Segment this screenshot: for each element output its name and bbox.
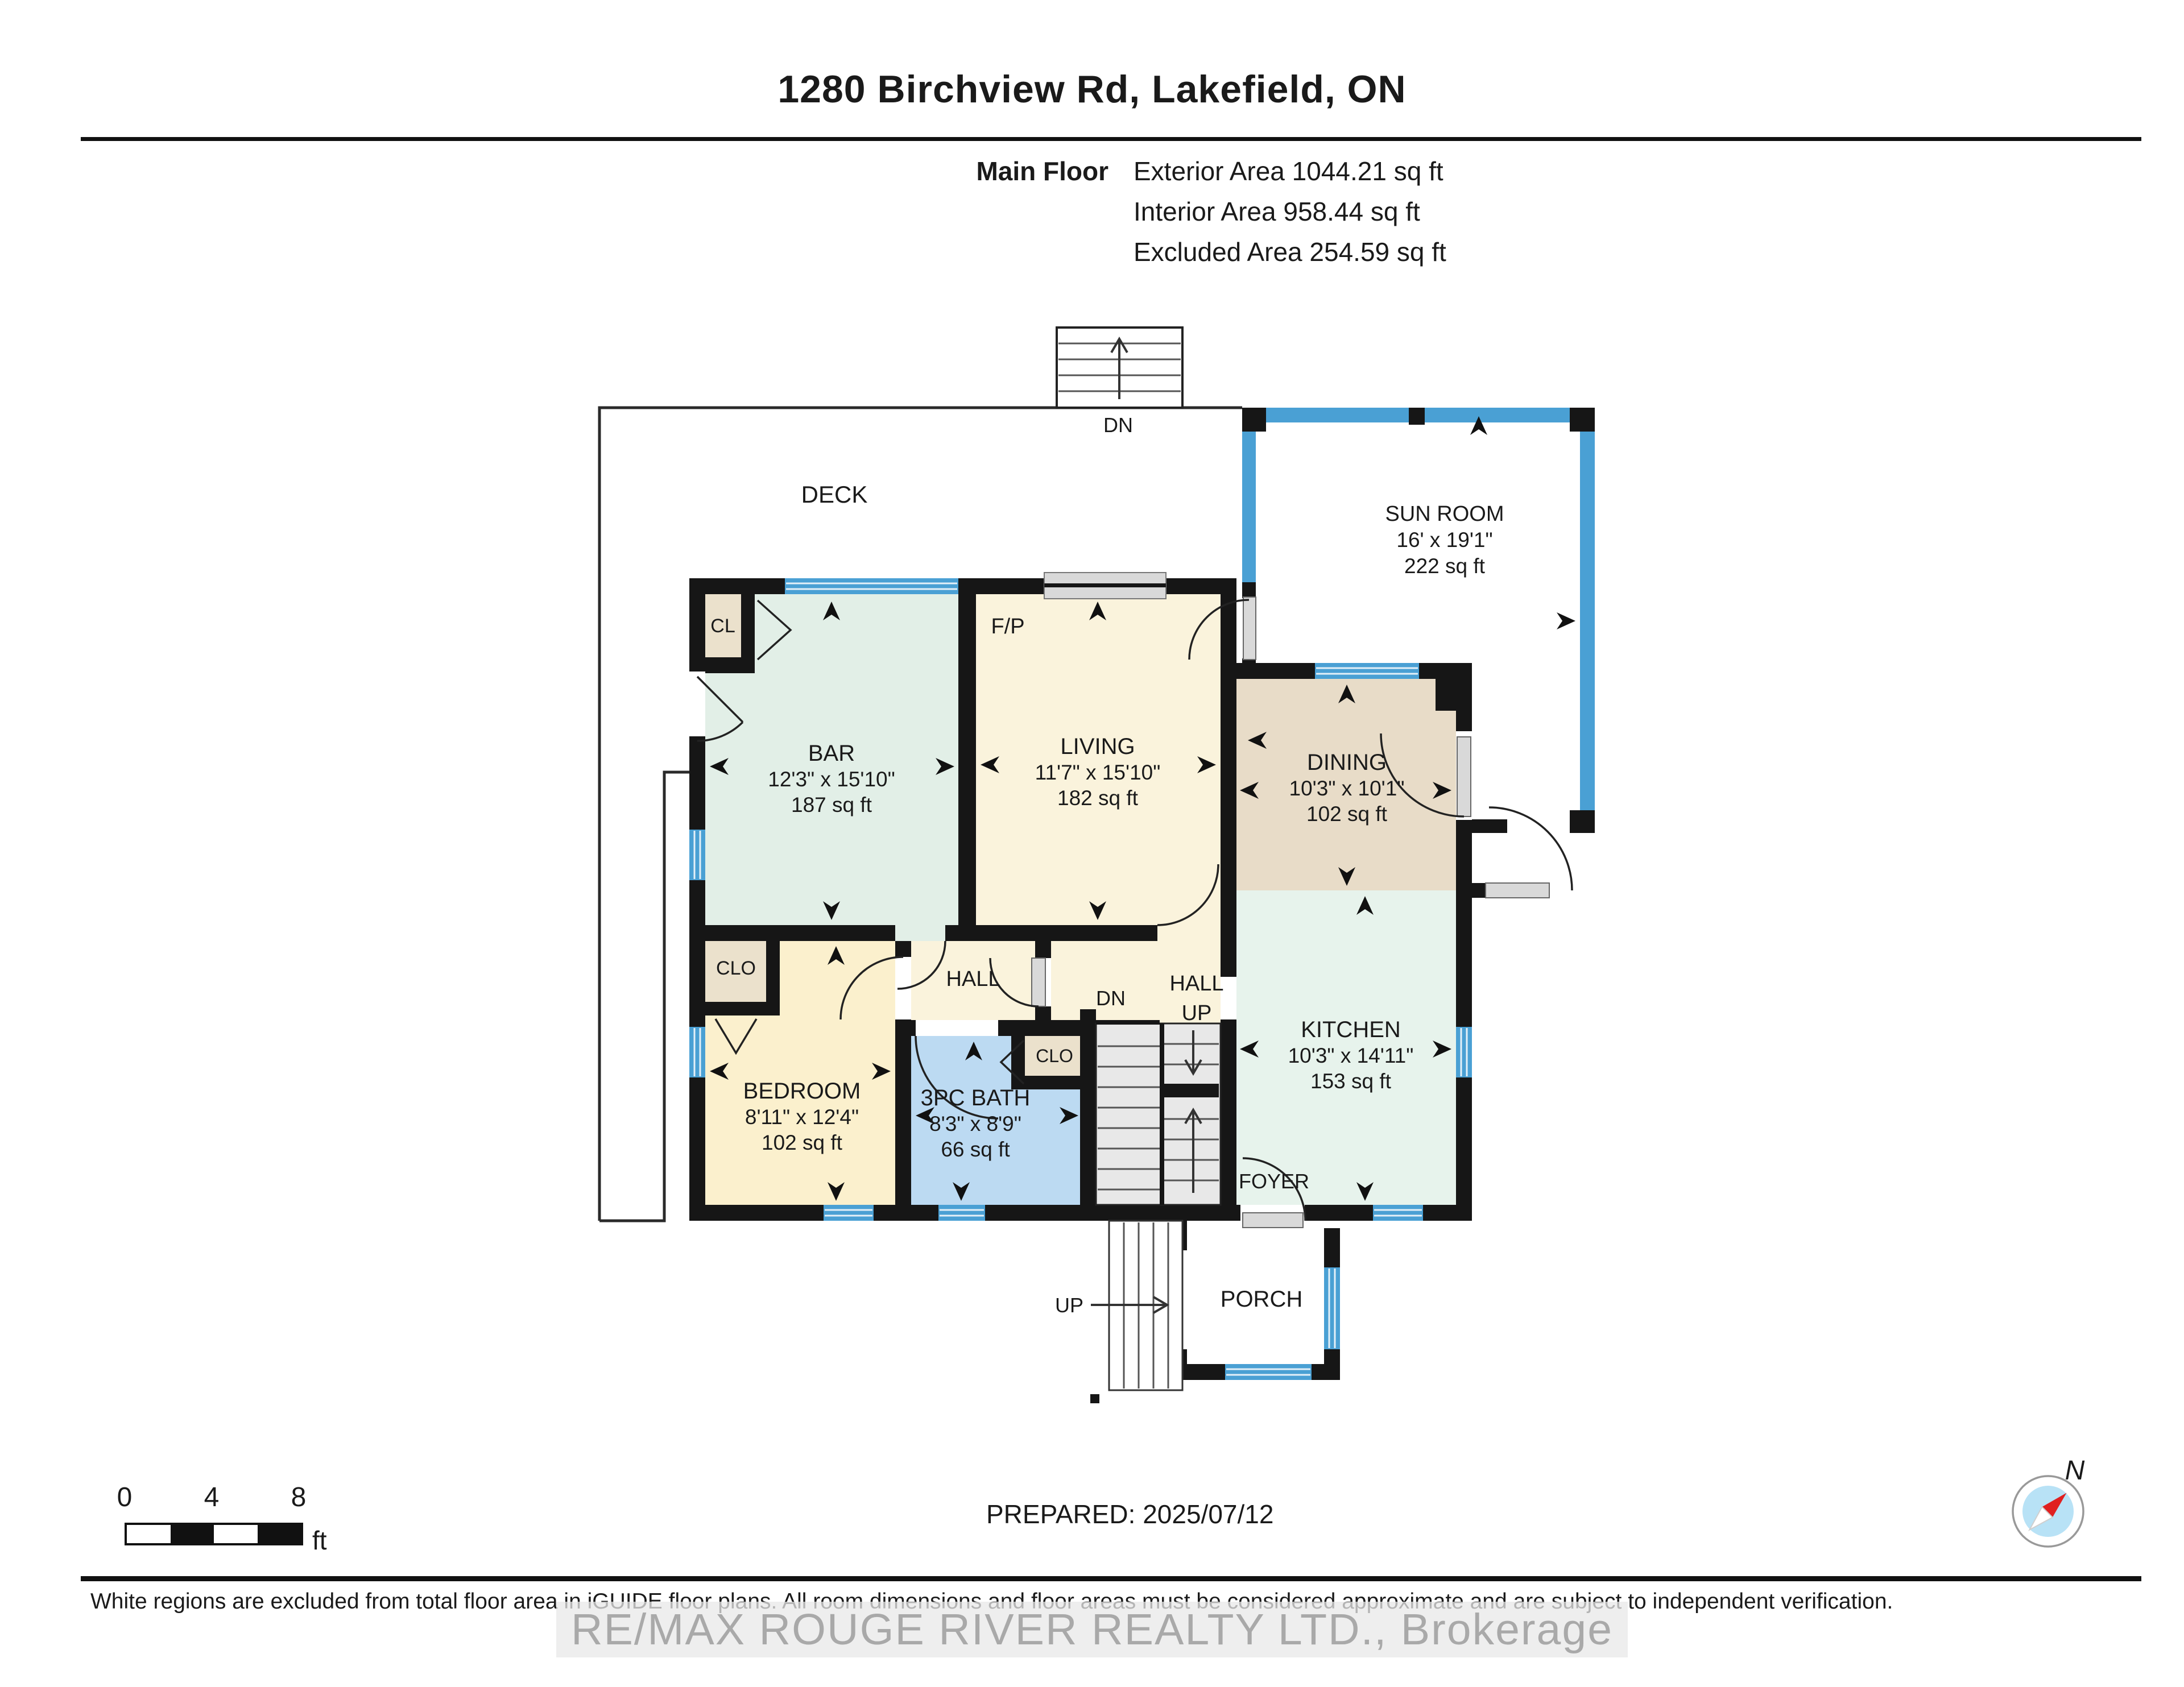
up-stairs-label: UP <box>1055 1294 1083 1317</box>
kitchen-dims: 10'3" x 14'11" <box>1288 1044 1414 1067</box>
floor-plan-page: 1280 Birchview Rd, Lakefield, ON Main Fl… <box>0 0 2184 1687</box>
bath-area: 66 sq ft <box>941 1138 1010 1161</box>
bar-top-window <box>785 578 958 594</box>
compass-north-label: N <box>2065 1456 2085 1486</box>
sunroom-dims: 16' x 19'1" <box>1396 528 1492 552</box>
bedroom-bottom-window <box>824 1205 874 1221</box>
bar-name: BAR <box>808 741 855 766</box>
hall-up-label-1: HALL <box>1169 972 1223 996</box>
scale-unit: ft <box>312 1525 327 1556</box>
dining-top-window <box>1315 663 1419 679</box>
living-name: LIVING <box>1060 734 1135 759</box>
prepared-date: PREPARED: 2025/07/12 <box>986 1499 1273 1530</box>
footer-divider <box>81 1576 2141 1581</box>
porch-bottom-window <box>1225 1364 1312 1380</box>
scale-tick-8: 8 <box>282 1482 316 1513</box>
compass-icon: N <box>2013 1456 2085 1547</box>
bath-dims: 8'3" x 8'9" <box>929 1112 1021 1135</box>
fireplace <box>1044 573 1166 599</box>
sunroom-name: SUN ROOM <box>1385 502 1504 526</box>
floor-plan-svg: DECK DN SUN ROOM 16' x 19'1" 222 sq ft C… <box>0 0 2184 1687</box>
scale-tick-4: 4 <box>195 1482 229 1513</box>
kitchen-right-window <box>1456 1027 1472 1077</box>
scale-tick-0: 0 <box>107 1482 142 1513</box>
main-stairs <box>1096 1020 1221 1205</box>
foyer-label: FOYER <box>1239 1170 1309 1193</box>
dining-dims: 10'3" x 10'1" <box>1289 777 1405 800</box>
sunroom-bottom-wall <box>1472 819 1507 833</box>
brokerage-watermark: RE/MAX ROUGE RIVER REALTY LTD., Brokerag… <box>0 1605 2184 1655</box>
stairs-dn-label: DN <box>1096 986 1126 1010</box>
bar-dims: 12'3" x 15'10" <box>768 768 895 791</box>
fp-label: F/P <box>991 615 1024 639</box>
bar-area: 187 sq ft <box>791 793 872 816</box>
bar-left-window <box>689 830 705 880</box>
scale-bar <box>125 1523 303 1545</box>
bedroom-dims: 8'11" x 12'4" <box>745 1105 859 1129</box>
sunroom-area: 222 sq ft <box>1404 554 1486 578</box>
dining-area: 102 sq ft <box>1306 802 1388 826</box>
clo-bath-label: CLO <box>1036 1046 1073 1066</box>
bath-name: 3PC BATH <box>921 1085 1031 1110</box>
deck-stairs <box>1057 328 1182 408</box>
hall-up-label-2: UP <box>1182 1001 1212 1025</box>
kitchen-bottom-window <box>1373 1205 1423 1221</box>
bath-bottom-window <box>938 1205 985 1221</box>
porch-label: PORCH <box>1221 1287 1302 1312</box>
deck-label: DECK <box>801 481 868 508</box>
clo-bedroom-label: CLO <box>716 958 756 979</box>
bedroom-left-window <box>689 1027 705 1077</box>
kitchen-name: KITCHEN <box>1301 1017 1401 1042</box>
deck-dn-label: DN <box>1103 413 1133 437</box>
dining-name: DINING <box>1307 750 1387 775</box>
hall-label: HALL <box>946 967 1000 991</box>
exterior-stairs <box>1090 1221 1182 1403</box>
bedroom-name: BEDROOM <box>743 1079 861 1104</box>
living-dims: 11'7" x 15'10" <box>1035 761 1161 784</box>
cl-label: CL <box>710 615 735 637</box>
kitchen-area: 153 sq ft <box>1310 1070 1392 1093</box>
bedroom-area: 102 sq ft <box>762 1131 843 1154</box>
living-area: 182 sq ft <box>1057 786 1139 810</box>
porch-right-window <box>1324 1267 1340 1349</box>
